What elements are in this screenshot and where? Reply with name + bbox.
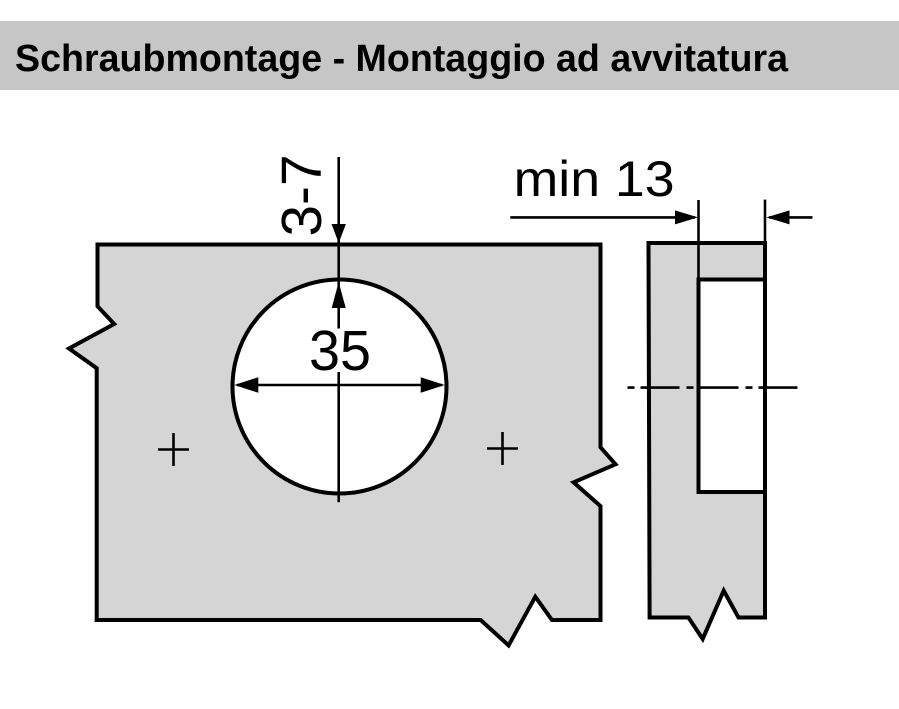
svg-text:3-7: 3-7 <box>270 155 334 237</box>
svg-text:35: 35 <box>309 319 371 382</box>
svg-text:min 13: min 13 <box>514 151 675 207</box>
svg-text:Schraubmontage - Montaggio ad: Schraubmontage - Montaggio ad avvitatura <box>15 38 789 80</box>
